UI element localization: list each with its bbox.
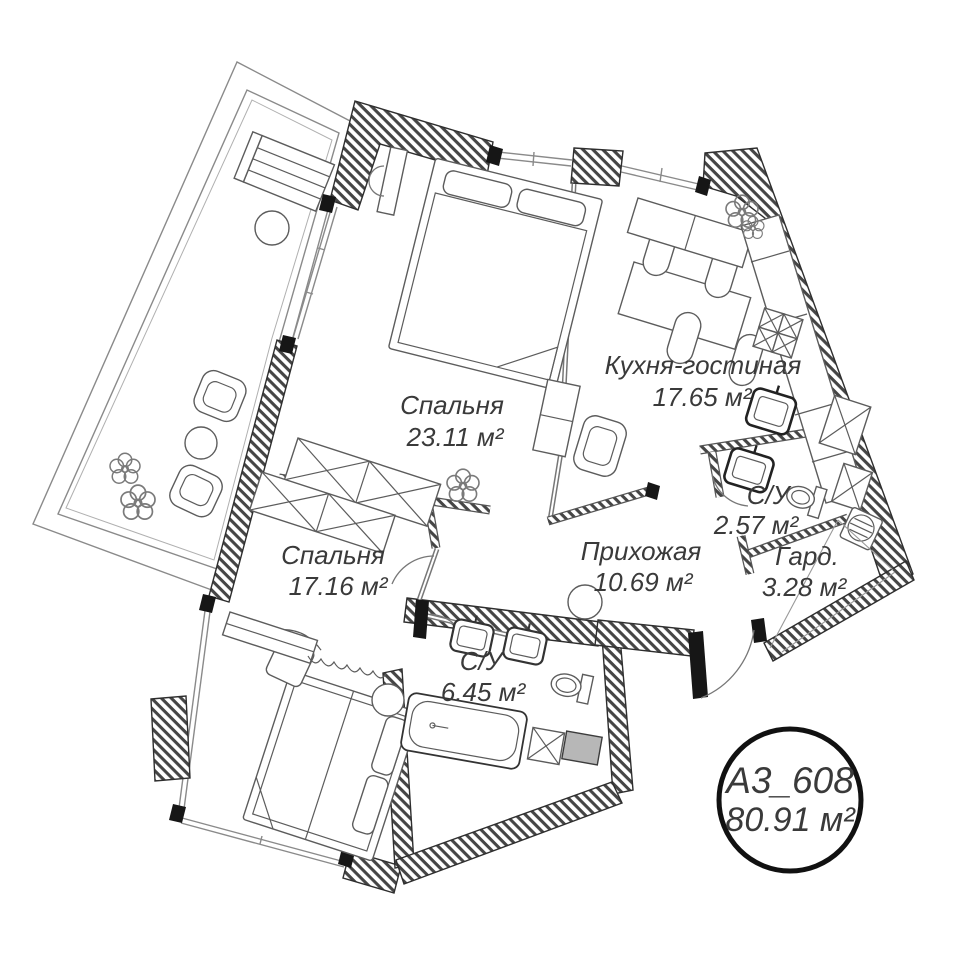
terrace-armchair-2 — [166, 461, 226, 520]
label-kitchen-area: 17.65 м² — [653, 382, 753, 412]
unit-badge-id: A3_608 — [724, 760, 854, 801]
armchair — [571, 413, 629, 479]
water-heater — [562, 731, 602, 765]
furniture-bedroom-1 — [284, 158, 602, 526]
terrace-lounger — [234, 132, 334, 211]
wall-top-pillar — [571, 148, 623, 186]
label-bathroom-name: С/У — [460, 646, 505, 676]
floor-plan-canvas: Спальня 23.11 м² Кухня-гостиная 17.65 м²… — [0, 0, 960, 960]
kitchen-hall-wall — [548, 490, 652, 521]
furniture-bedroom-2 — [223, 472, 421, 861]
toilet — [549, 668, 594, 704]
window-kitchen-top-a — [497, 152, 572, 166]
curtain — [308, 656, 386, 678]
label-bedroom-1-name: Спальня — [400, 390, 504, 420]
floor-plan: Спальня 23.11 м² Кухня-гостиная 17.65 м²… — [0, 0, 960, 960]
side-table — [372, 684, 404, 716]
label-bathroom-area: 6.45 м² — [441, 677, 527, 707]
label-bedroom-2-name: Спальня — [281, 540, 385, 570]
unit-badge-area: 80.91 м² — [725, 801, 856, 839]
label-su-small-name: С/У — [747, 480, 792, 510]
window-kitchen-top-b — [621, 166, 703, 191]
dressing-table — [533, 379, 580, 456]
label-hallway-name: Прихожая — [581, 536, 702, 566]
plant-icon — [121, 485, 155, 519]
washing-machine — [527, 727, 564, 764]
entrance-door-arc — [701, 630, 754, 698]
wall-window-pier — [151, 696, 190, 781]
terrace-table-2 — [185, 427, 217, 459]
label-su-small-area: 2.57 м² — [713, 510, 800, 540]
terrace-table-1 — [255, 211, 289, 245]
label-bedroom-2-area: 17.16 м² — [289, 571, 389, 601]
wall-bathroom-bottom — [396, 782, 622, 884]
bed-double — [388, 158, 602, 390]
label-wardrobe-name: Гард. — [775, 541, 839, 571]
label-wardrobe-area: 3.28 м² — [762, 572, 848, 602]
plant-icon — [110, 453, 140, 483]
label-hallway-area: 10.69 м² — [594, 567, 694, 597]
low-wardrobe — [223, 612, 318, 663]
terrace-armchair-1 — [190, 367, 249, 425]
label-kitchen-name: Кухня-гостиная — [605, 350, 802, 380]
label-bedroom-1-area: 23.11 м² — [406, 422, 505, 452]
plant-icon — [447, 469, 479, 501]
unit-badge: A3_608 80.91 м² — [719, 729, 861, 871]
